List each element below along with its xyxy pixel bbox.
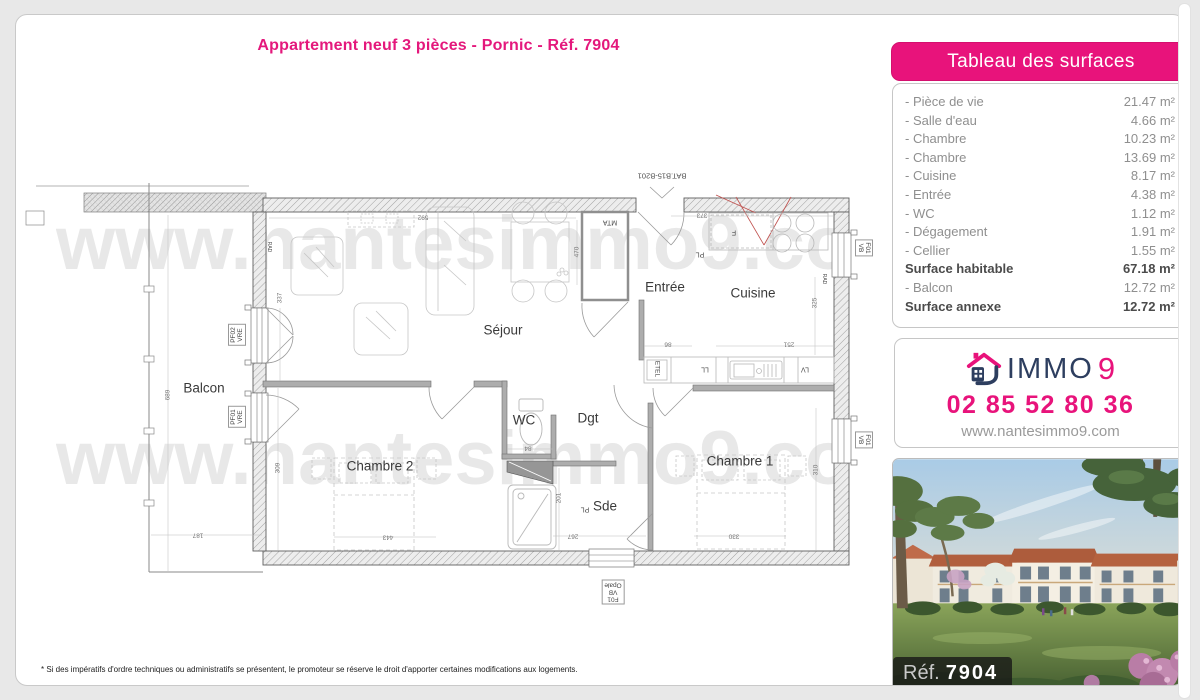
surface-row-value: 12.72 m² (1123, 298, 1175, 317)
photo-illustration (893, 459, 1185, 686)
surface-row: - Cellier1.55 m² (905, 242, 1175, 261)
property-photo: Réf.7904 (892, 458, 1185, 686)
surface-row-value: 67.18 m² (1123, 260, 1175, 279)
surface-row-label: - Entrée (905, 186, 951, 205)
surface-row: - Chambre13.69 m² (905, 149, 1175, 168)
phone-number: 02 85 52 80 36 (895, 391, 1185, 420)
surface-row-label: - Balcon (905, 279, 953, 298)
agency-card: IMMO9 02 85 52 80 36 www.nantesimmo9.com (894, 338, 1185, 448)
surface-table-header: Tableau des surfaces (891, 42, 1185, 81)
brand-9: 9 (1098, 351, 1116, 387)
surface-row-label: Surface habitable (905, 260, 1013, 279)
surface-row-value: 1.91 m² (1131, 223, 1175, 242)
surface-row: - Chambre10.23 m² (905, 130, 1175, 149)
ref-number: 7904 (946, 662, 999, 684)
ref-badge: Réf.7904 (893, 657, 1012, 686)
surface-row: - Pièce de vie21.47 m² (905, 93, 1175, 112)
surface-row-value: 13.69 m² (1124, 149, 1175, 168)
content-card: Appartement neuf 3 pièces - Pornic - Réf… (15, 14, 1185, 686)
surface-row: Surface annexe12.72 m² (905, 298, 1175, 317)
surface-row-value: 4.66 m² (1131, 112, 1175, 131)
surface-row-value: 21.47 m² (1124, 93, 1175, 112)
page-title: Appartement neuf 3 pièces - Pornic - Réf… (16, 37, 861, 55)
agency-website: www.nantesimmo9.com (895, 423, 1185, 440)
surface-row-label: - WC (905, 205, 935, 224)
surface-row-label: - Pièce de vie (905, 93, 984, 112)
brand-immo: IMMO (1007, 353, 1094, 386)
surface-row-label: - Cellier (905, 242, 950, 261)
page: Appartement neuf 3 pièces - Pornic - Réf… (0, 0, 1200, 700)
surface-row-value: 12.72 m² (1124, 279, 1175, 298)
surface-row-value: 8.17 m² (1131, 167, 1175, 186)
scrollbar-thumb[interactable] (1178, 3, 1191, 699)
surface-row-label: - Cuisine (905, 167, 956, 186)
surface-row: - Cuisine8.17 m² (905, 167, 1175, 186)
footnote: * Si des impératifs d'ordre techniques o… (41, 665, 578, 674)
surface-row: - Dégagement1.91 m² (905, 223, 1175, 242)
floor-plan (16, 141, 886, 621)
surface-row-label: - Salle d'eau (905, 112, 977, 131)
house-icon (965, 350, 1003, 388)
surface-row: - Balcon12.72 m² (905, 279, 1175, 298)
surface-row-label: - Dégagement (905, 223, 987, 242)
surface-row: - Entrée4.38 m² (905, 186, 1175, 205)
surface-row-value: 1.12 m² (1131, 205, 1175, 224)
surface-row-label: - Chambre (905, 149, 966, 168)
surface-row-value: 1.55 m² (1131, 242, 1175, 261)
surface-row-value: 10.23 m² (1124, 130, 1175, 149)
ref-label: Réf. (903, 662, 940, 684)
surface-row-value: 4.38 m² (1131, 186, 1175, 205)
surface-row: - WC1.12 m² (905, 205, 1175, 224)
surface-table: - Pièce de vie21.47 m²- Salle d'eau4.66 … (892, 83, 1185, 328)
surface-row: Surface habitable67.18 m² (905, 260, 1175, 279)
surface-row: - Salle d'eau4.66 m² (905, 112, 1175, 131)
surface-row-label: Surface annexe (905, 298, 1001, 317)
surface-row-label: - Chambre (905, 130, 966, 149)
immo9-logo: IMMO9 (895, 349, 1185, 389)
